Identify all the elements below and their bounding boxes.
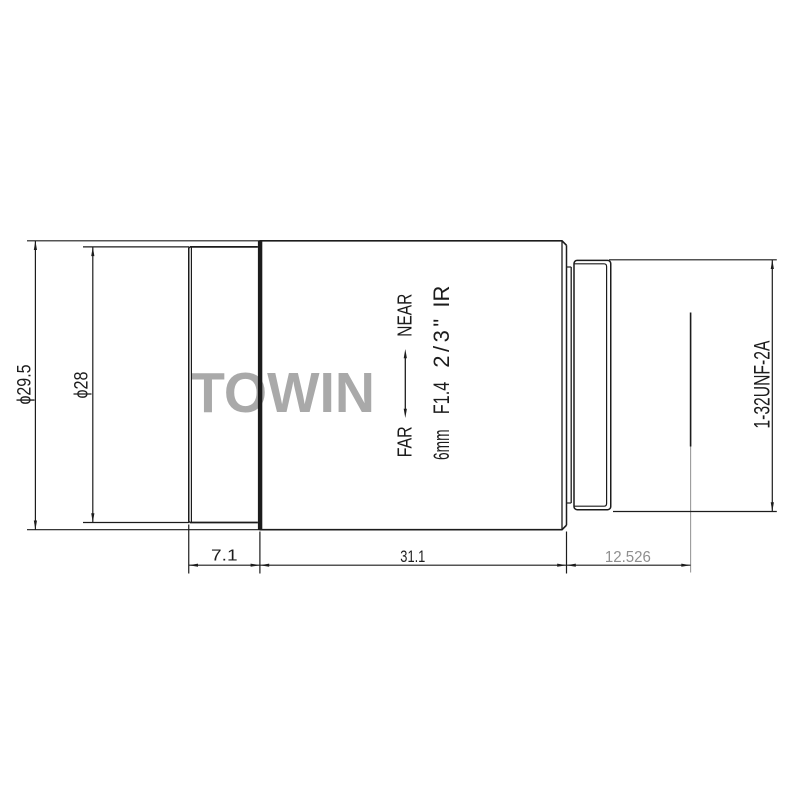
svg-text:ϕ29.5: ϕ29.5 xyxy=(15,365,36,405)
svg-text:TOWIN: TOWIN xyxy=(191,361,375,424)
svg-text:1-32UNF-2A: 1-32UNF-2A xyxy=(750,340,775,428)
svg-text:31.1: 31.1 xyxy=(400,547,425,566)
svg-text:FAR: FAR xyxy=(395,426,417,457)
svg-text:IR: IR xyxy=(429,286,454,308)
svg-text:NEAR: NEAR xyxy=(395,294,417,337)
svg-text:12.526: 12.526 xyxy=(605,549,651,566)
svg-text:F1.4: F1.4 xyxy=(429,382,454,415)
svg-text:7.1: 7.1 xyxy=(211,548,238,565)
svg-text:6mm: 6mm xyxy=(429,429,454,460)
svg-text:ϕ28: ϕ28 xyxy=(71,372,92,399)
svg-text:2/3": 2/3" xyxy=(429,319,454,368)
